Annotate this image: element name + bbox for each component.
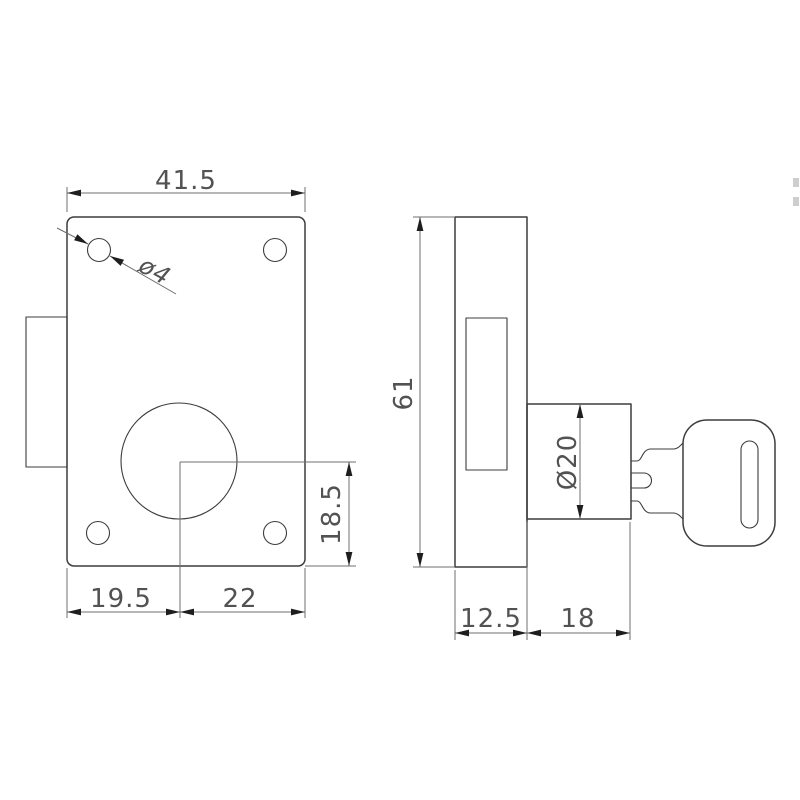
dim-offset-right-label: 22 bbox=[222, 584, 257, 614]
technical-drawing: 41.5 ø4 19.5 22 18.5 bbox=[0, 0, 800, 800]
bolt bbox=[26, 317, 67, 467]
dim-cylinder-length-label: 18 bbox=[560, 604, 595, 634]
key-bow bbox=[683, 420, 775, 546]
dim-plate-width-label: 41.5 bbox=[155, 166, 217, 196]
dim-cylinder-diameter-label: Ø20 bbox=[553, 434, 583, 491]
dim-hole-diameter-label: ø4 bbox=[133, 251, 175, 291]
arrowhead bbox=[110, 256, 124, 266]
key-blade-tip bbox=[631, 473, 652, 488]
front-view-dimensions: 41.5 ø4 19.5 22 18.5 bbox=[57, 166, 356, 618]
arrowhead bbox=[346, 552, 353, 566]
screw-hole-bottom-right bbox=[264, 522, 287, 545]
arrowhead bbox=[180, 609, 194, 616]
arrowhead bbox=[291, 190, 305, 197]
arrowhead bbox=[67, 190, 81, 197]
cylinder-opening bbox=[121, 403, 237, 519]
arrowhead bbox=[74, 234, 88, 244]
key-bow-slot bbox=[741, 441, 758, 528]
dim-body-depth-label: 12.5 bbox=[460, 604, 522, 634]
edge-artifact-mark bbox=[793, 178, 799, 187]
arrowhead bbox=[166, 609, 180, 616]
dim-body-height-label: 61 bbox=[389, 375, 419, 410]
screw-hole-top-right bbox=[264, 239, 287, 262]
drawing-canvas: 41.5 ø4 19.5 22 18.5 bbox=[0, 0, 800, 800]
arrowhead bbox=[417, 553, 424, 567]
dim-offset-left-label: 19.5 bbox=[90, 584, 152, 614]
screw-hole-top-left bbox=[88, 239, 111, 262]
edge-artifacts bbox=[793, 178, 799, 206]
arrowhead bbox=[577, 404, 584, 418]
arrowhead bbox=[291, 609, 305, 616]
latch-window bbox=[466, 318, 507, 470]
dim-offset-bottom-label: 18.5 bbox=[317, 483, 347, 545]
face-plate bbox=[67, 217, 305, 566]
arrowhead bbox=[417, 217, 424, 231]
screw-hole-bottom-left bbox=[87, 522, 110, 545]
arrowhead bbox=[527, 630, 541, 637]
key-neck-bottom bbox=[631, 501, 683, 519]
arrowhead bbox=[346, 462, 353, 476]
arrowhead bbox=[577, 505, 584, 519]
side-view-dimensions: 61 Ø20 12.5 18 bbox=[389, 217, 630, 640]
side-view bbox=[455, 217, 775, 567]
key-neck-top bbox=[631, 443, 683, 461]
dim-body-height-lines bbox=[413, 217, 455, 567]
edge-artifact-mark bbox=[793, 197, 799, 206]
arrowhead bbox=[67, 609, 81, 616]
key bbox=[631, 420, 775, 546]
arrowhead bbox=[616, 630, 630, 637]
